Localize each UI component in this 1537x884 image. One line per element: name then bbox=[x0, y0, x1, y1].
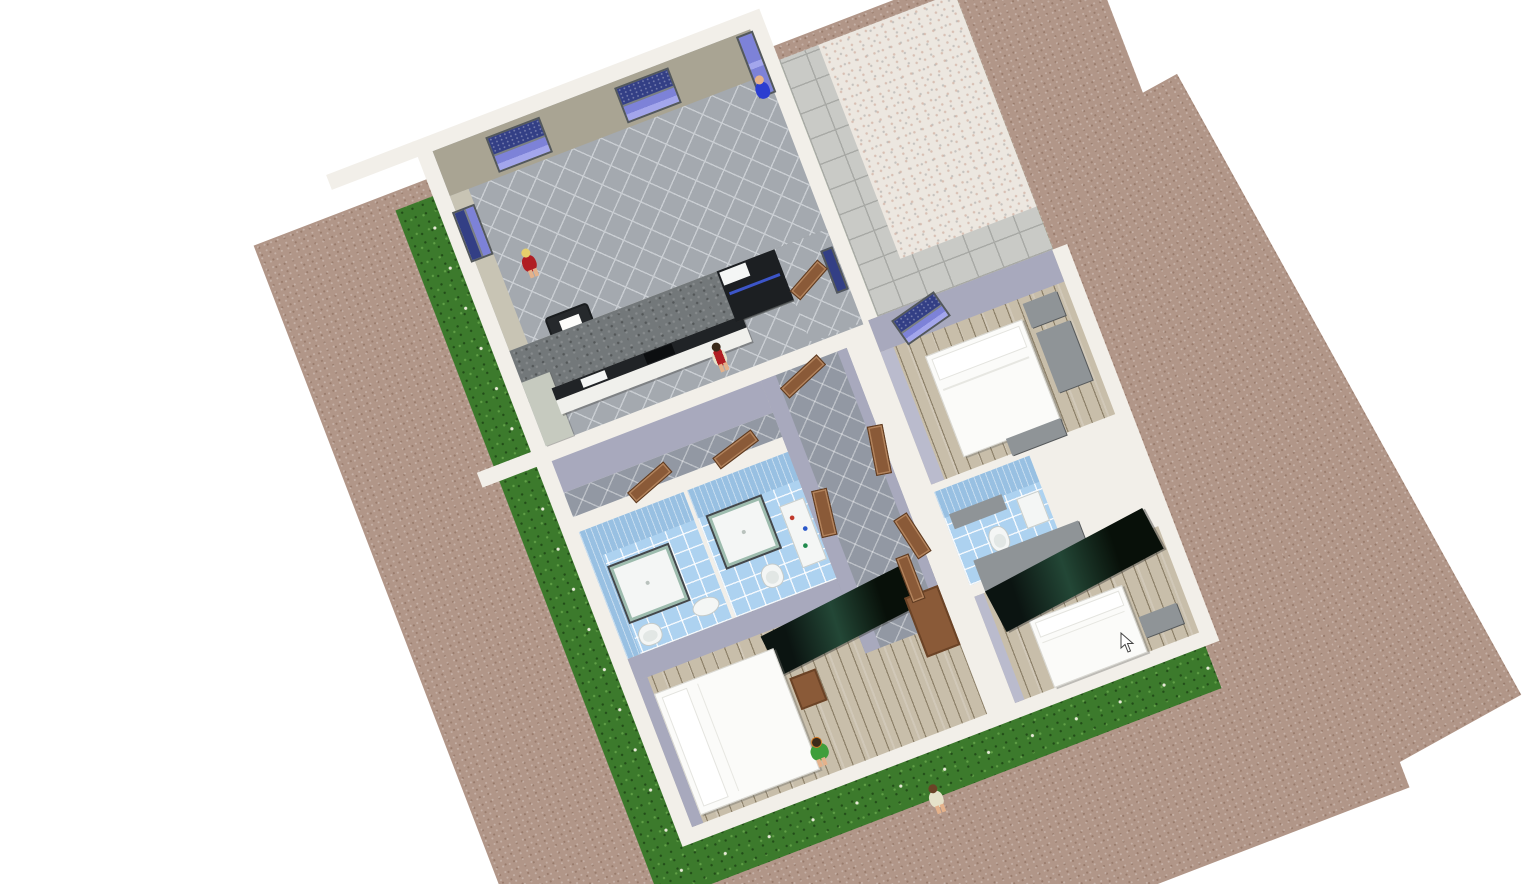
bench bbox=[1139, 603, 1184, 638]
sink bbox=[1016, 491, 1050, 529]
nightstand bbox=[1023, 291, 1066, 328]
front-door bbox=[790, 260, 828, 301]
pedestal-sink bbox=[690, 593, 723, 620]
toilet bbox=[758, 561, 787, 591]
garden-wall bbox=[326, 141, 419, 190]
living-room-wall bbox=[433, 29, 768, 196]
mouse-cursor-icon bbox=[1120, 632, 1136, 654]
toilet bbox=[635, 620, 665, 649]
3d-home-view[interactable] bbox=[0, 0, 1537, 884]
